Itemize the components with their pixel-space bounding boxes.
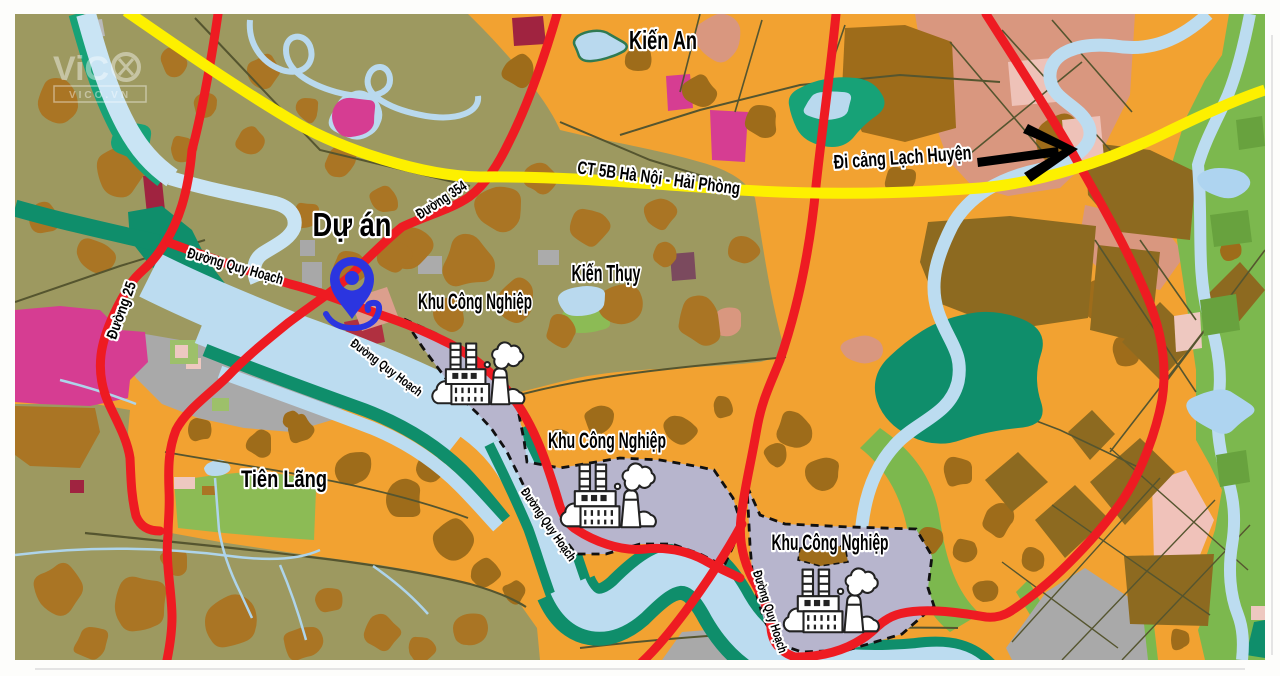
- svg-text:Dự án: Dự án: [313, 206, 392, 243]
- svg-text:ViC: ViC: [53, 50, 109, 88]
- svg-text:Khu Công Nghiệp: Khu Công Nghiệp: [418, 289, 532, 314]
- svg-text:Khu Công Nghiệp: Khu Công Nghiệp: [548, 428, 666, 453]
- svg-text:VICO.VN: VICO.VN: [69, 90, 131, 101]
- svg-text:Kiến Thụy: Kiến Thụy: [572, 260, 641, 286]
- svg-text:Khu Công Nghiệp: Khu Công Nghiệp: [772, 530, 889, 555]
- svg-text:Kiến An: Kiến An: [629, 25, 697, 55]
- svg-text:Tiên Lãng: Tiên Lãng: [241, 466, 327, 493]
